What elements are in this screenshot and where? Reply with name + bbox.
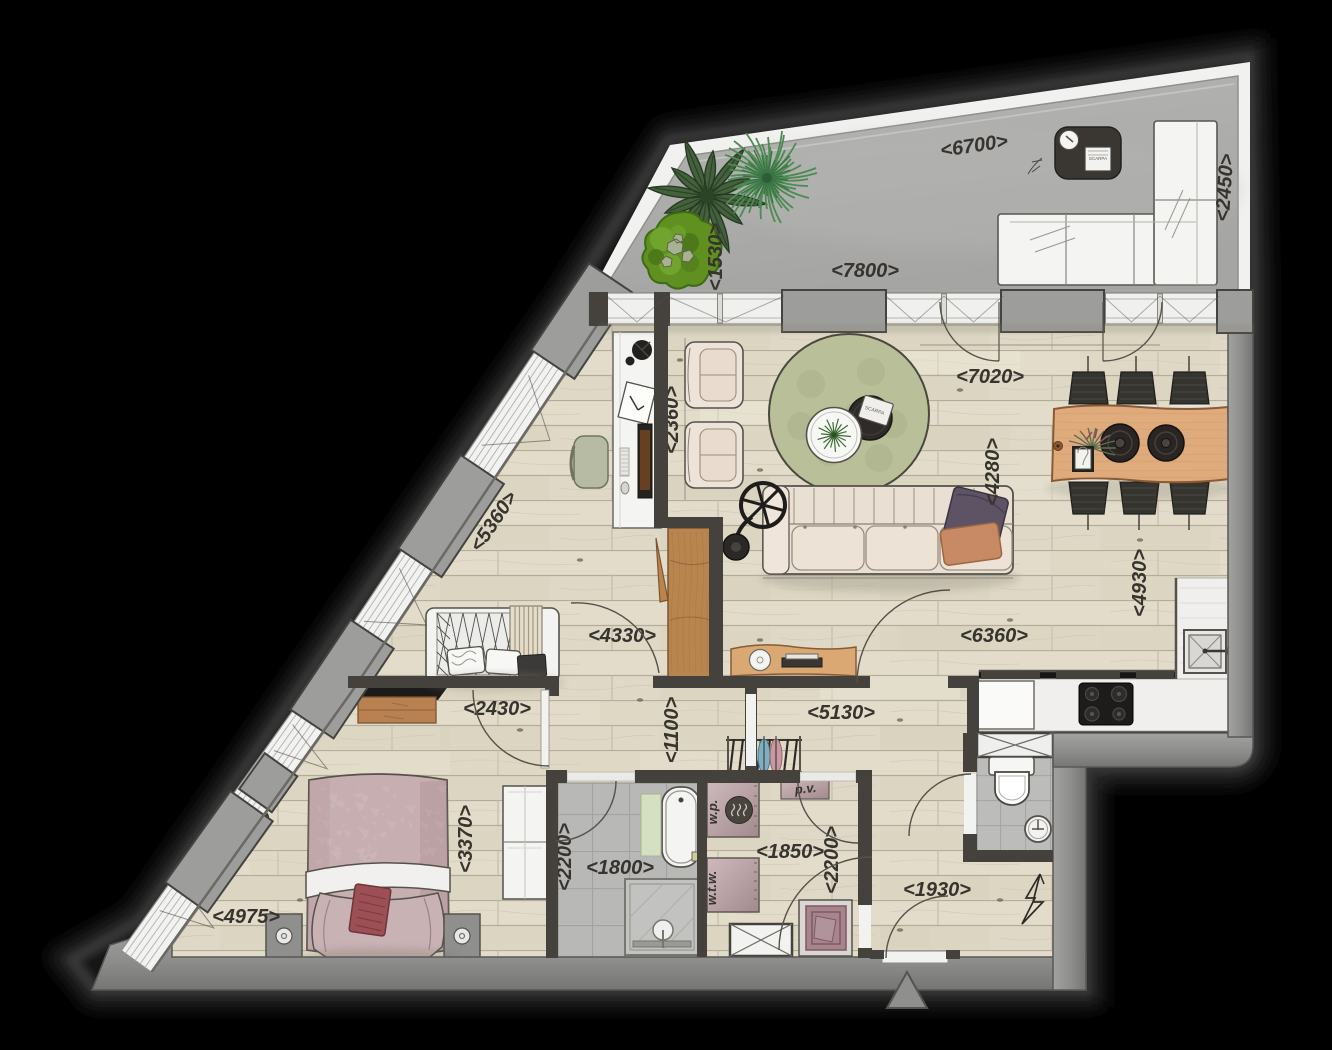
svg-text:<4330>: <4330> [588,625,656,647]
svg-text:<7020>: <7020> [956,366,1024,388]
svg-text:<1930>: <1930> [903,879,971,901]
svg-text:<1530>: <1530> [705,223,727,291]
svg-text:<1100>: <1100> [661,697,683,764]
svg-text:w.p.: w.p. [705,800,720,825]
svg-text:<1850>: <1850> [756,841,824,863]
svg-text:<4280>: <4280> [982,438,1004,506]
svg-text:<5130>: <5130> [807,702,875,724]
svg-text:<6360>: <6360> [960,625,1028,647]
svg-text:<4975>: <4975> [212,906,280,928]
svg-text:<1800>: <1800> [586,857,654,879]
svg-text:<7800>: <7800> [831,260,899,282]
svg-text:<3370>: <3370> [455,805,477,873]
svg-text:<2200>: <2200> [821,826,843,894]
svg-text:<4930>: <4930> [1129,549,1151,617]
svg-text:SCARPA: SCARPA [1089,156,1107,161]
